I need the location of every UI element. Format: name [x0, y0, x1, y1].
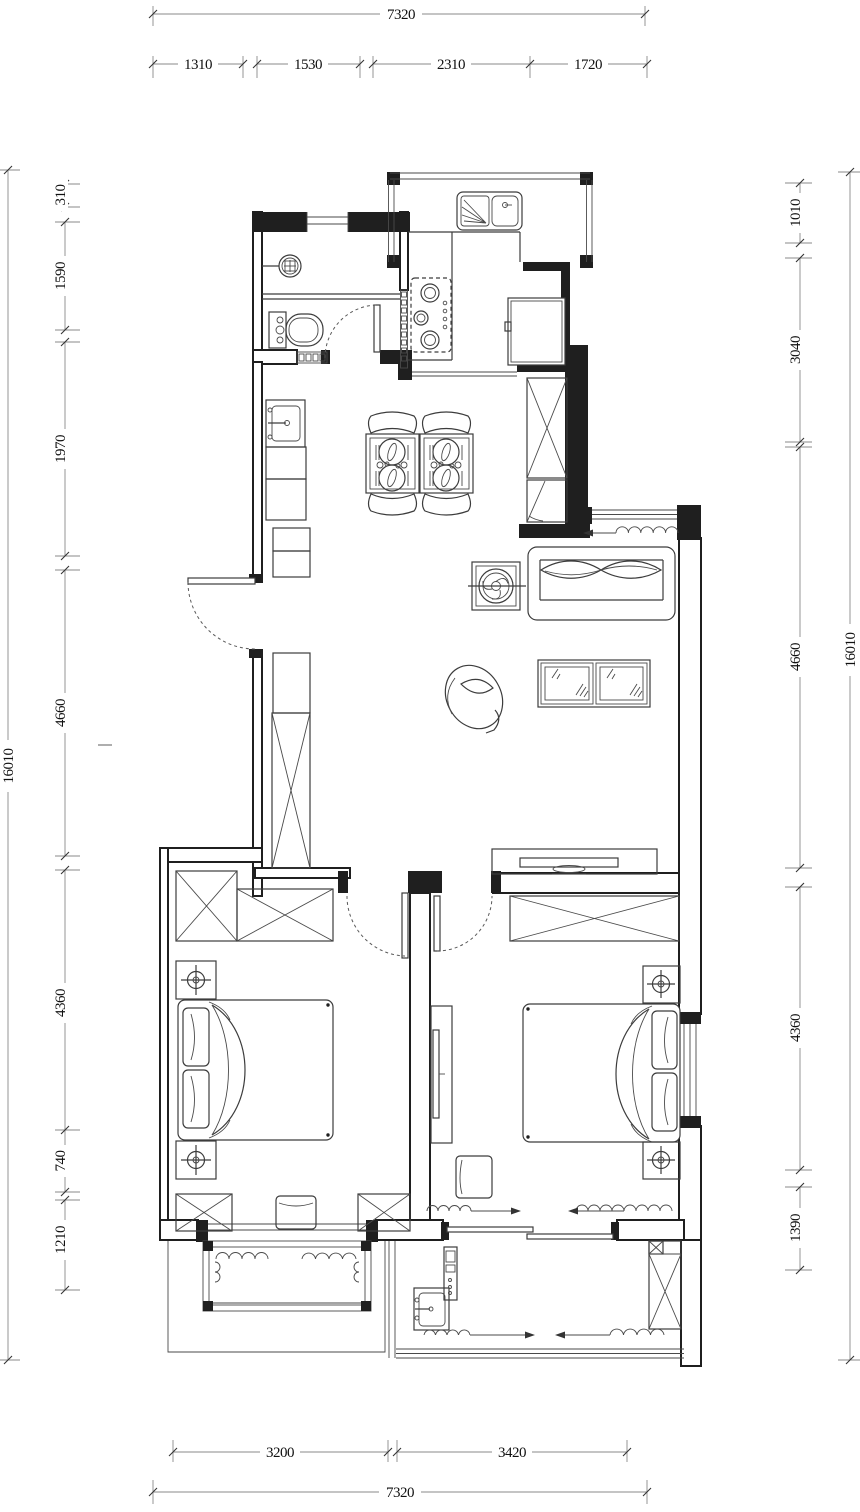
floor-plan-drawing: 7320 1310 1530 2310 1720 16010 310 1590 …: [0, 0, 860, 1512]
shower-partition: [262, 294, 400, 299]
entry-cabinet: [273, 551, 310, 577]
dim-right-seg-2: 4660: [788, 643, 804, 671]
dim-top-seg-3: 1720: [574, 57, 602, 73]
dim-right-seg-4: 1390: [788, 1214, 804, 1242]
sofa: [528, 547, 675, 620]
nightstand: [176, 1141, 216, 1179]
shoe-cabinet-x: [272, 713, 310, 868]
hall-cabinet: [273, 653, 310, 713]
balcony-cabinet-x: [649, 1241, 681, 1329]
dim-top-seg-0: 1310: [184, 57, 212, 73]
dim-left-seg-1: 1590: [53, 262, 69, 290]
tv-cabinet-bedroom: [431, 1006, 452, 1143]
curtain-balcony: [424, 1329, 664, 1338]
bedroom-right: [427, 896, 680, 1215]
exterior-landing-outline: [168, 1241, 385, 1352]
kitchen-sink: [457, 192, 522, 230]
dim-left-seg-6: 1210: [53, 1226, 69, 1254]
curtain-wave: [216, 1253, 268, 1259]
balcony-side-window: [389, 1241, 395, 1358]
dimension-labels: 7320 1310 1530 2310 1720 16010 310 1590 …: [0, 6, 859, 1501]
bay-window: [203, 1224, 371, 1311]
kitchen: [408, 192, 565, 365]
fan-table: [468, 562, 526, 610]
wardrobe-right: [510, 896, 679, 941]
dining-chair: [369, 494, 417, 515]
kitchen-pass-track: [412, 372, 517, 376]
walls: [160, 172, 701, 1366]
dim-top-seg-1: 1530: [294, 57, 322, 73]
nightstand: [643, 966, 680, 1003]
curtain-living: [583, 527, 678, 537]
floor-drain: [262, 255, 301, 277]
water-heater: [444, 1247, 457, 1300]
toilet: [269, 312, 323, 348]
dimension-lines: [0, 6, 860, 1504]
wash-basin: [266, 400, 305, 447]
living-room-window: [592, 510, 677, 519]
dim-left-seg-2: 1970: [53, 435, 69, 463]
bedroom-right-door: [434, 896, 492, 951]
entry-door: [188, 578, 255, 649]
bedroom-left-door: [347, 893, 408, 958]
dim-left-total: 16010: [1, 749, 17, 784]
balcony-bottom-window: [396, 1349, 684, 1358]
bed-left: [178, 1000, 333, 1140]
refrigerator: [505, 298, 565, 365]
curtain-wave: [302, 1253, 356, 1259]
wardrobe-left-b: [237, 889, 333, 941]
dim-right-seg-3: 4360: [788, 1014, 804, 1042]
floor-plan-canvas: 7320 1310 1530 2310 1720 16010 310 1590 …: [0, 0, 860, 1512]
bathroom-door: [325, 305, 380, 358]
dining-area: [266, 378, 567, 868]
dim-bottom-seg-0: 3200: [266, 1445, 294, 1461]
balcony-sliding-door: [447, 1227, 613, 1239]
tv-stand-living: [492, 849, 657, 874]
dim-top-seg-2: 2310: [437, 57, 465, 73]
storage-cabinet-x: [527, 378, 567, 522]
dim-bottom-seg-1: 3420: [498, 1445, 526, 1461]
dim-left-seg-4: 4360: [53, 989, 69, 1017]
dim-right-seg-0: 1010: [788, 199, 804, 227]
wardrobe-left-a: [176, 871, 237, 941]
windows: [168, 173, 699, 1358]
dim-right-seg-1: 3040: [788, 336, 804, 364]
bedroom-left: [176, 871, 410, 1231]
dining-chair: [423, 494, 471, 515]
tiled-wall-strip-vertical: [401, 290, 408, 368]
dining-chair: [423, 412, 471, 433]
curtain-bedroom-right: [427, 1205, 672, 1215]
living-room: [434, 527, 678, 874]
dim-right-total: 16010: [843, 633, 859, 668]
dim-left-seg-0: 310: [53, 185, 69, 206]
nightstand: [643, 1142, 680, 1179]
dim-left-seg-3: 4660: [53, 699, 69, 727]
bedroom-right-wall-window: [681, 1024, 699, 1116]
cabinet: [266, 447, 306, 479]
dim-top-total: 7320: [387, 7, 415, 23]
nightstand: [176, 961, 216, 999]
tv-bedroom: [433, 1030, 439, 1118]
bed-right: [523, 1004, 680, 1142]
bathroom-window: [307, 212, 348, 232]
dining-chair: [369, 412, 417, 433]
lounge-chair: [434, 655, 514, 739]
stool: [456, 1156, 492, 1198]
entry-cabinet: [273, 528, 310, 551]
balcony: [414, 1241, 681, 1339]
cabinet: [266, 479, 306, 520]
dim-bottom-total: 7320: [386, 1485, 414, 1501]
dim-left-seg-5: 740: [53, 1151, 69, 1172]
coffee-table: [538, 660, 650, 707]
gas-stove: [411, 278, 451, 352]
